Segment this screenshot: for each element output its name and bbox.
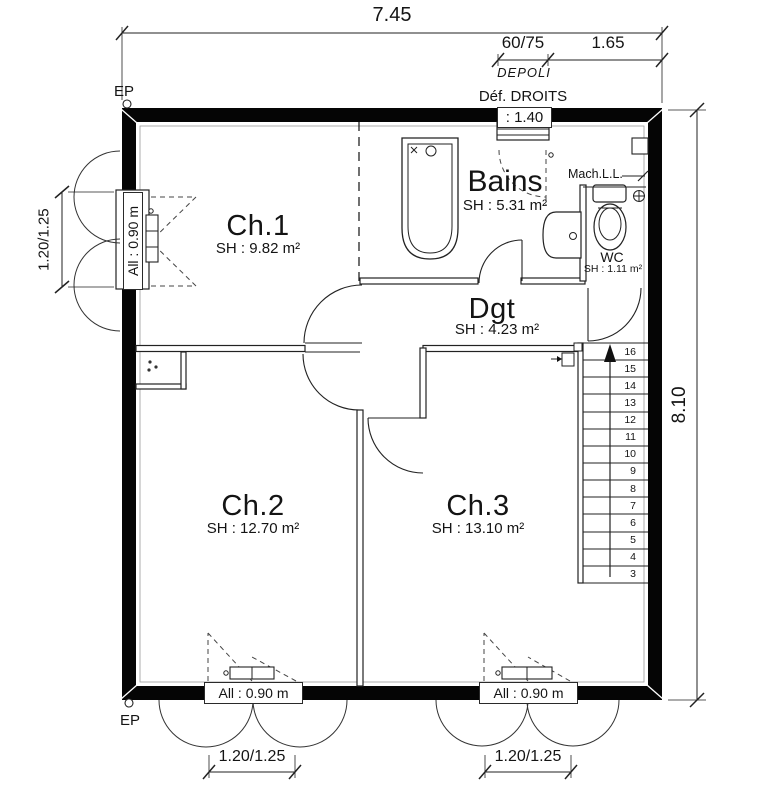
room-ch1-area: SH : 9.82 m² bbox=[203, 240, 313, 257]
dim-bottom-left: 1.20/1.25 bbox=[206, 748, 298, 766]
ep-label-top: EP bbox=[106, 83, 142, 100]
dim-left-window: 1.20/1.25 bbox=[35, 194, 52, 286]
def-droits-label: Déf. DROITS bbox=[473, 88, 573, 105]
room-ch3-area: SH : 13.10 m² bbox=[423, 520, 533, 537]
room-ch2-area: SH : 12.70 m² bbox=[198, 520, 308, 537]
closet-icon bbox=[147, 360, 157, 371]
dim-top-window: 60/75 bbox=[488, 33, 558, 53]
room-ch1-name: Ch.1 bbox=[208, 210, 308, 243]
stairs-up-arrow bbox=[604, 344, 616, 362]
room-ch2-name: Ch.2 bbox=[203, 490, 303, 523]
top-window-height-label: : 1.40 bbox=[497, 107, 552, 128]
allege-bottom-left-label: All : 0.90 m bbox=[204, 682, 303, 704]
stairs-drawing bbox=[551, 343, 648, 583]
allege-left-label: All : 0.90 m bbox=[123, 192, 143, 290]
radiator-icon bbox=[146, 215, 158, 262]
dim-right-overall: 8.10 bbox=[669, 369, 691, 441]
dim-bottom-right: 1.20/1.25 bbox=[482, 748, 574, 766]
room-bains-area: SH : 5.31 m² bbox=[455, 197, 555, 214]
room-dgt-area: SH : 4.23 m² bbox=[447, 321, 547, 338]
interior-walls bbox=[136, 185, 586, 686]
floor-plan-drawing bbox=[0, 0, 778, 800]
room-bains-name: Bains bbox=[450, 165, 560, 200]
door-stop bbox=[574, 343, 582, 351]
dim-top-overall: 7.45 bbox=[352, 4, 432, 27]
ep-label-bottom: EP bbox=[112, 712, 148, 729]
sink-icon bbox=[543, 212, 581, 258]
floor-plan: 7.45 60/75 1.65 DEPOLI Déf. DROITS : 1.4… bbox=[0, 0, 778, 800]
dim-top-right: 1.65 bbox=[573, 33, 643, 53]
dimension-lines bbox=[55, 26, 706, 779]
duct bbox=[632, 138, 648, 154]
allege-bottom-right-label: All : 0.90 m bbox=[479, 682, 578, 704]
room-ch3-name: Ch.3 bbox=[428, 490, 528, 523]
depoli-label: DEPOLI bbox=[489, 66, 559, 81]
room-wc-area: SH : 1.11 m² bbox=[577, 263, 649, 275]
toilet-icon bbox=[593, 185, 626, 250]
mach-label: Mach.L.L. bbox=[568, 167, 623, 181]
